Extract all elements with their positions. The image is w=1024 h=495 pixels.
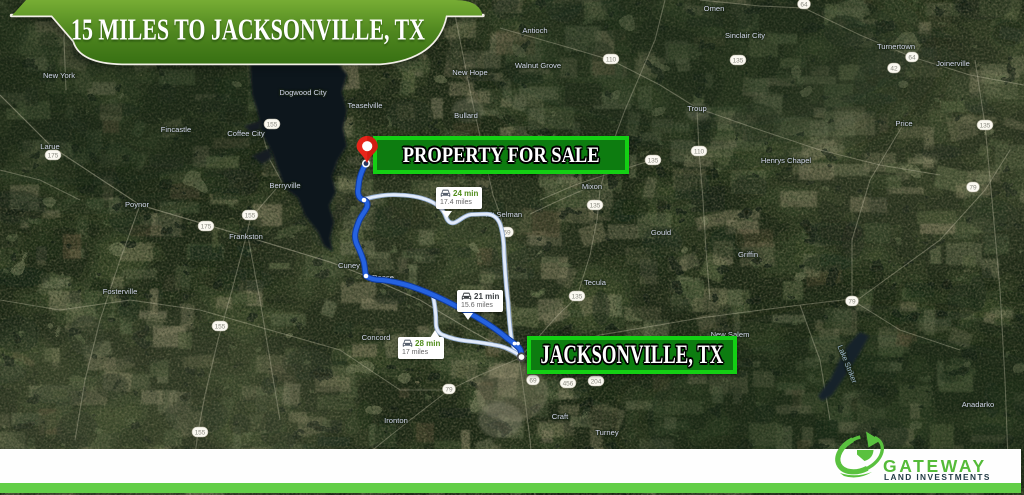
svg-text:135: 135: [733, 57, 744, 64]
svg-text:New York: New York: [43, 71, 75, 80]
svg-text:Coffee City: Coffee City: [227, 129, 265, 138]
svg-text:Bullard: Bullard: [454, 111, 478, 120]
svg-text:456: 456: [563, 380, 574, 387]
svg-text:Ironton: Ironton: [384, 416, 408, 425]
svg-text:Henrys Chapel: Henrys Chapel: [761, 156, 812, 165]
svg-text:155: 155: [267, 121, 278, 128]
svg-text:Joinerville: Joinerville: [936, 59, 970, 68]
svg-text:Griffin: Griffin: [738, 250, 758, 259]
svg-text:Frankston: Frankston: [229, 232, 263, 241]
svg-text:Teaselville: Teaselville: [347, 101, 382, 110]
svg-text:64: 64: [800, 1, 808, 8]
svg-text:110: 110: [694, 148, 705, 155]
svg-text:79: 79: [848, 298, 856, 305]
svg-text:Turney: Turney: [595, 428, 619, 437]
svg-text:Dogwood City: Dogwood City: [279, 88, 326, 97]
svg-text:204: 204: [591, 378, 602, 385]
svg-text:Craft: Craft: [552, 412, 569, 421]
svg-text:Anadarko: Anadarko: [962, 400, 995, 409]
svg-text:Gould: Gould: [651, 228, 671, 237]
svg-text:135: 135: [572, 293, 583, 300]
svg-text:Tecula: Tecula: [584, 278, 607, 287]
svg-text:Larue: Larue: [40, 142, 59, 151]
svg-text:15 MILES TO JACKSONVILLE, TX: 15 MILES TO JACKSONVILLE, TX: [71, 11, 425, 46]
svg-text:Poynor: Poynor: [125, 200, 150, 209]
svg-text:135: 135: [590, 202, 601, 209]
svg-text:Berryville: Berryville: [269, 181, 300, 190]
svg-text:Troup: Troup: [687, 104, 707, 113]
svg-text:Walnut Grove: Walnut Grove: [515, 61, 561, 70]
svg-text:110: 110: [606, 56, 617, 63]
svg-text:155: 155: [245, 212, 256, 219]
svg-text:155: 155: [195, 429, 206, 436]
svg-text:Concord: Concord: [362, 333, 391, 342]
svg-text:Omen: Omen: [704, 4, 725, 13]
svg-text:155: 155: [215, 323, 226, 330]
svg-text:Mixon: Mixon: [582, 182, 602, 191]
svg-text:Price: Price: [895, 119, 912, 128]
svg-text:64: 64: [908, 54, 916, 61]
svg-text:175: 175: [201, 223, 212, 230]
svg-text:79: 79: [969, 184, 977, 191]
svg-text:Fosterville: Fosterville: [103, 287, 138, 296]
svg-text:Cuney: Cuney: [338, 261, 360, 270]
svg-text:Sinclair City: Sinclair City: [725, 31, 765, 40]
svg-text:42: 42: [890, 65, 898, 72]
svg-text:79: 79: [445, 386, 453, 393]
svg-text:Antioch: Antioch: [522, 26, 547, 35]
svg-text:69: 69: [529, 377, 537, 384]
svg-text:135: 135: [980, 122, 991, 129]
svg-text:135: 135: [648, 157, 659, 164]
svg-text:Turnertown: Turnertown: [877, 42, 915, 51]
svg-text:Fincastle: Fincastle: [161, 125, 191, 134]
svg-text:175: 175: [48, 152, 59, 159]
